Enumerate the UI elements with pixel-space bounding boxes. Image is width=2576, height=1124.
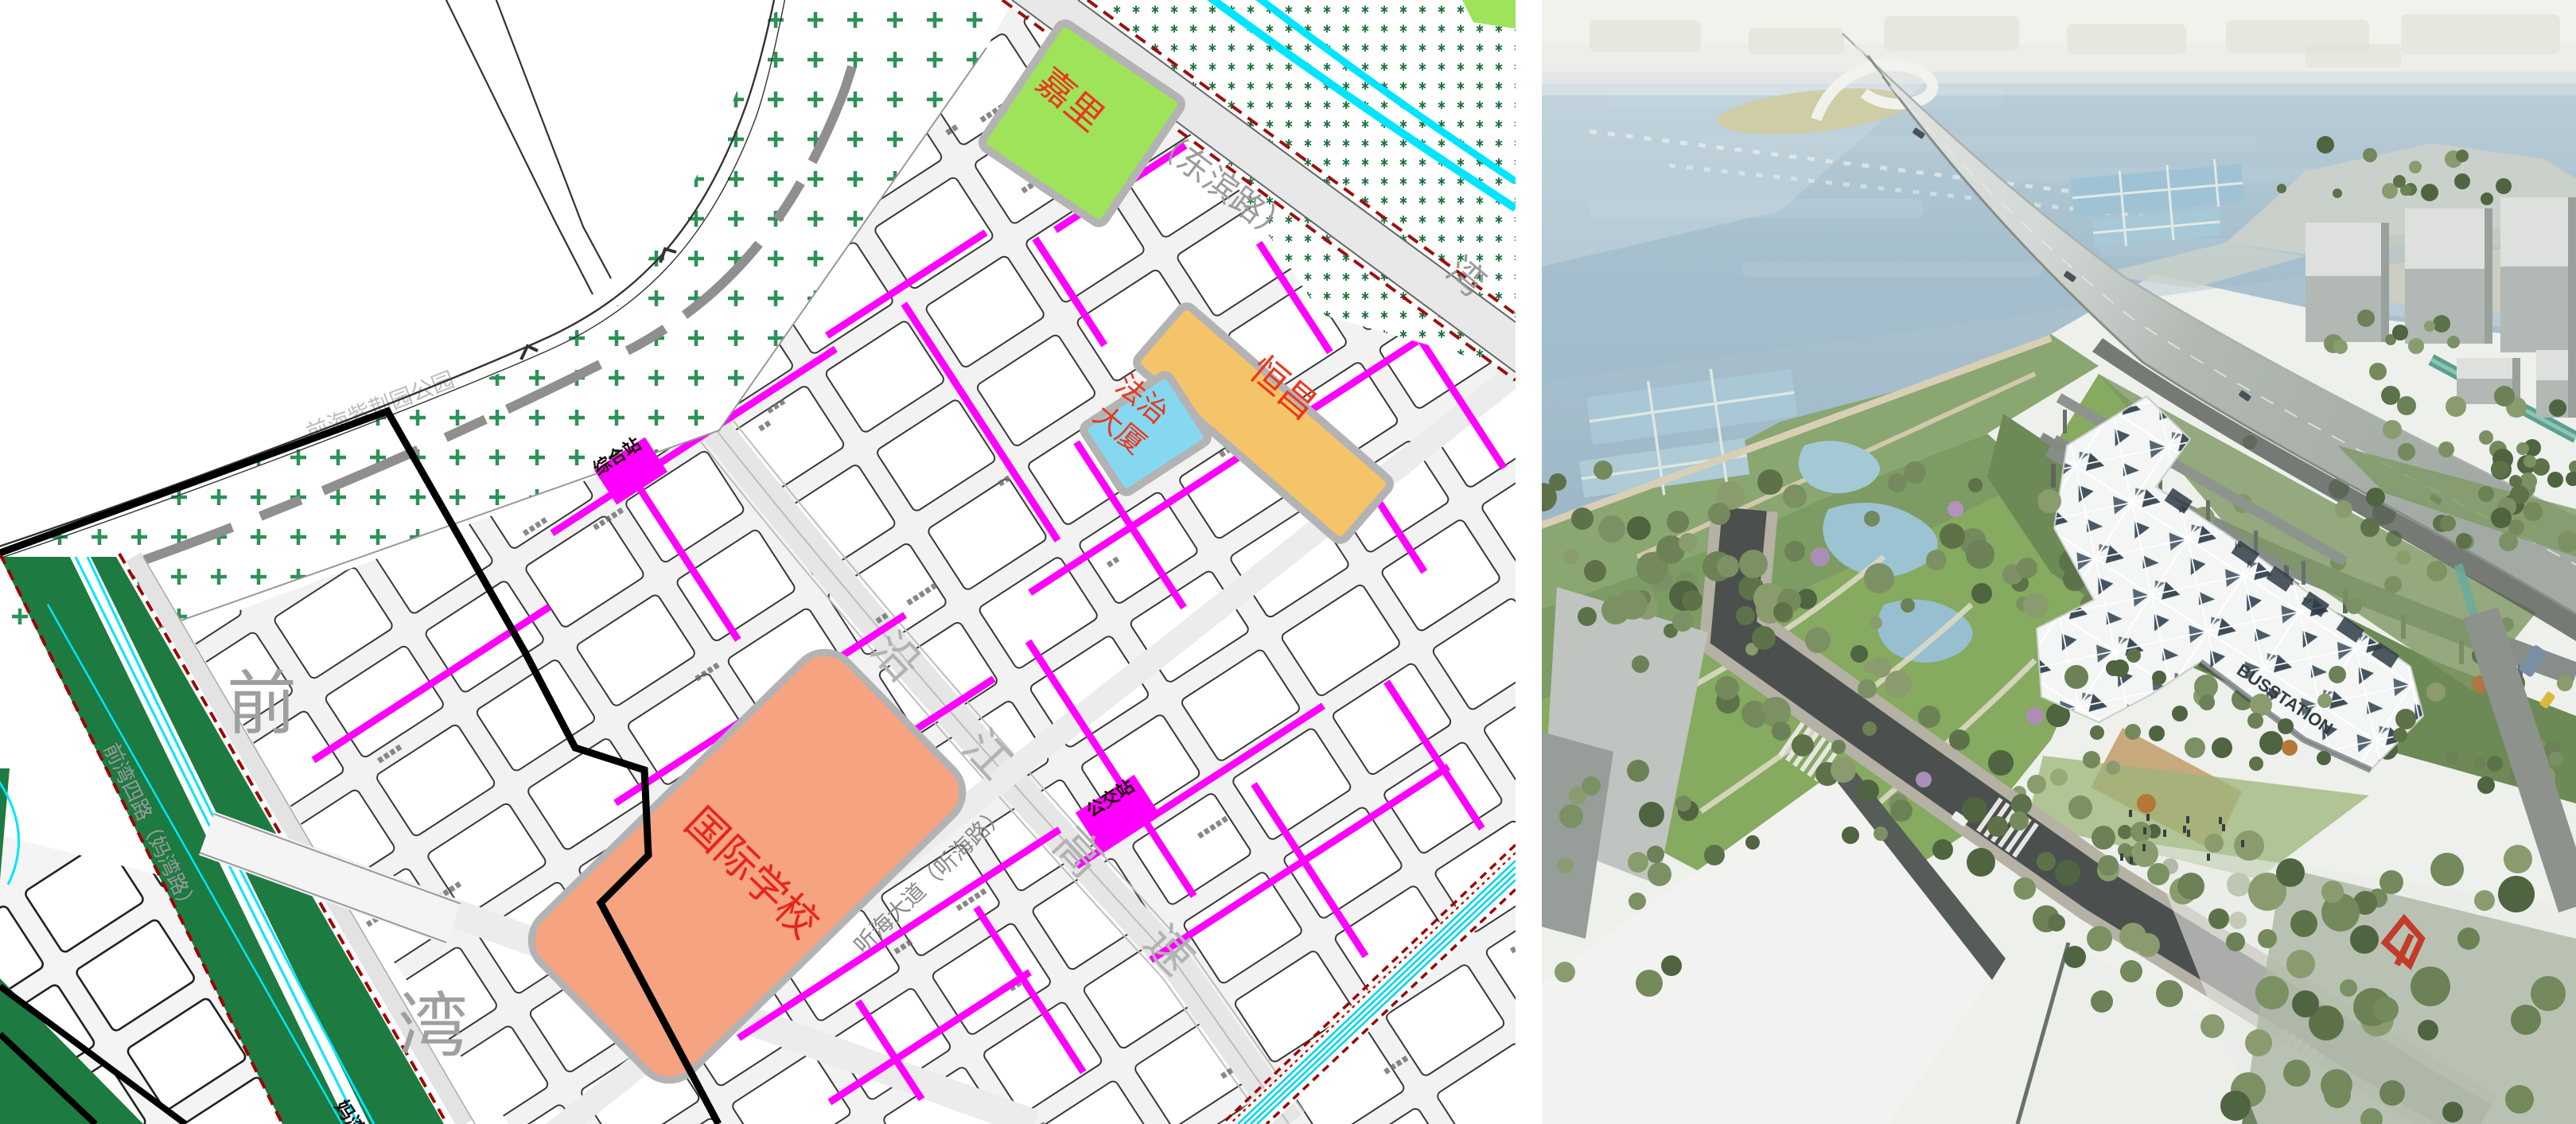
svg-text:湾: 湾 [398,986,468,1065]
svg-text:前: 前 [227,664,297,743]
